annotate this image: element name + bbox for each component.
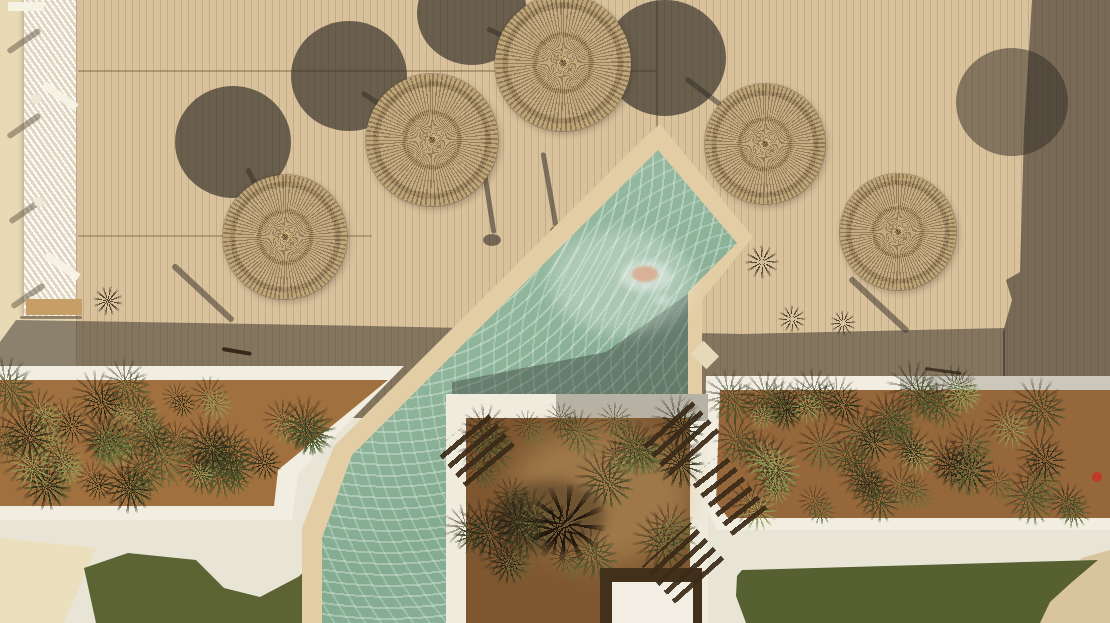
swimmer bbox=[632, 266, 658, 282]
agave-plant bbox=[552, 412, 583, 443]
agave-plant bbox=[298, 426, 327, 455]
twisted-agave bbox=[532, 504, 584, 556]
agave-plant bbox=[1057, 493, 1092, 528]
red-object bbox=[1092, 472, 1102, 482]
wooden-bench bbox=[26, 299, 82, 315]
wicker-parasol bbox=[366, 74, 498, 206]
agave-plant bbox=[806, 495, 835, 524]
wicker-parasol bbox=[705, 84, 825, 204]
agave-plant bbox=[4, 412, 54, 462]
grass-tuft bbox=[830, 310, 856, 336]
grass-tuft bbox=[778, 305, 806, 333]
parasol-shadow bbox=[956, 48, 1068, 156]
pole-base-shadow bbox=[483, 234, 501, 246]
lounger-frame-bar bbox=[8, 2, 44, 11]
grass-tuft bbox=[745, 245, 779, 279]
agave-plant bbox=[134, 406, 162, 434]
fence-post bbox=[34, 197, 44, 207]
agave-plant bbox=[855, 469, 886, 500]
wicker-parasol bbox=[223, 175, 347, 299]
agave-plant bbox=[762, 475, 793, 506]
wicker-parasol bbox=[495, 0, 631, 131]
agave-plant bbox=[941, 376, 981, 416]
agave-plant bbox=[126, 455, 169, 498]
agave-plant bbox=[189, 425, 236, 472]
bench-shadow bbox=[20, 316, 82, 319]
agave-plant bbox=[908, 484, 935, 511]
agave-plant bbox=[1024, 440, 1067, 483]
fence-post bbox=[31, 94, 41, 104]
agave-plant bbox=[990, 476, 1018, 504]
swimmer-ripple bbox=[653, 295, 671, 305]
grass-tuft bbox=[93, 286, 123, 316]
aerial-photo-pool-deck bbox=[0, 0, 1110, 623]
wicker-parasol bbox=[840, 174, 956, 290]
agave-plant bbox=[872, 402, 914, 444]
agave-plant bbox=[55, 458, 84, 487]
